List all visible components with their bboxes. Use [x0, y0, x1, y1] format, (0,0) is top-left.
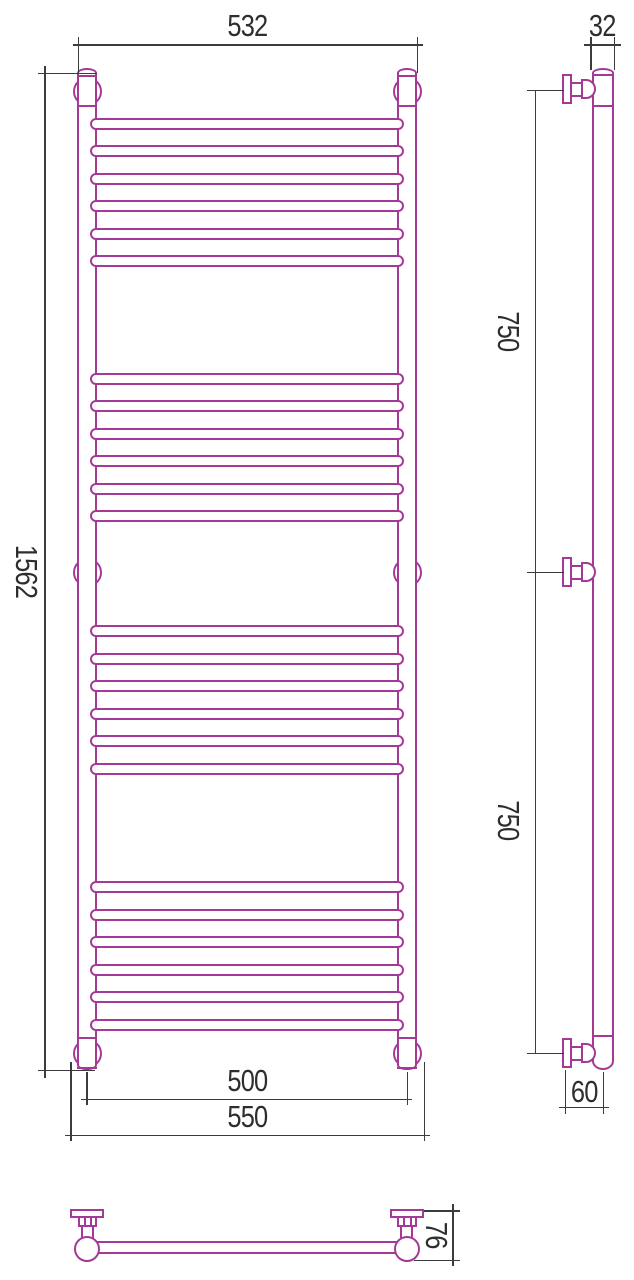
dim-750-lower-label: 750 [493, 772, 525, 868]
towel-rung [90, 964, 404, 976]
dim-750-ext-middle [527, 572, 564, 574]
dim-750-upper-label: 750 [493, 283, 525, 379]
towel-rung [90, 1019, 404, 1031]
towel-rung [90, 400, 404, 412]
towel-rung [90, 228, 404, 240]
plan-right-bracket-nut [397, 1216, 417, 1227]
towel-rung [90, 763, 404, 775]
dim-500-ext-right [407, 1072, 409, 1105]
plan-left-bracket-nut [78, 1216, 97, 1227]
dim-550-ext-left [70, 1062, 72, 1141]
towel-rung [90, 373, 404, 385]
towel-rung [90, 118, 404, 130]
dim-500-label: 500 [187, 1064, 307, 1096]
tube-collar [77, 75, 97, 107]
towel-rung [90, 510, 404, 522]
dim-532-label: 532 [187, 8, 307, 42]
dim-500-ext-left [86, 1072, 88, 1105]
plan-right-nut-line [403, 1216, 405, 1227]
towel-rung [90, 936, 404, 948]
dim-550-label: 550 [187, 1100, 307, 1132]
towel-rung [90, 991, 404, 1003]
towel-rung [90, 200, 404, 212]
dim-550-ext-right [424, 1062, 426, 1141]
towel-rung [90, 680, 404, 692]
towel-rung [90, 735, 404, 747]
dim-750-ext-bottom [527, 1053, 564, 1055]
dim-76-label: 76 [422, 1203, 452, 1267]
tube-collar [77, 1037, 97, 1069]
towel-rung [90, 625, 404, 637]
towel-rung [90, 255, 404, 267]
dim-532-ext-right [417, 37, 419, 73]
dim-1562-ext-bottom [38, 1070, 95, 1072]
tube-collar [397, 1037, 417, 1069]
towel-rung [90, 455, 404, 467]
dim-550-line [65, 1135, 430, 1137]
plan-left-nut-line [90, 1216, 92, 1227]
towel-rail-technical-drawing: 532 32 1562 750 750 500 [0, 0, 634, 1280]
plan-rail-bar [97, 1241, 397, 1254]
dim-532-line [73, 44, 423, 46]
towel-rung [90, 483, 404, 495]
dim-60-label: 60 [559, 1076, 609, 1106]
plan-right-nut-line [410, 1216, 412, 1227]
dim-1562-label: 1562 [11, 506, 43, 636]
plan-left-tube-section [74, 1236, 100, 1262]
dim-532-ext-left [78, 37, 80, 73]
plan-right-tube-section [394, 1236, 420, 1262]
towel-rung [90, 909, 404, 921]
dim-32-label: 32 [578, 8, 626, 42]
towel-rung [90, 708, 404, 720]
plan-left-nut-line [84, 1216, 86, 1227]
dim-750-ext-top [527, 90, 564, 92]
towel-rung [90, 145, 404, 157]
dim-1562-ext-top [38, 73, 97, 75]
side-bottom-collar [592, 1035, 614, 1045]
tube-collar [397, 75, 417, 107]
towel-rung [90, 428, 404, 440]
towel-rung [90, 653, 404, 665]
side-top-collar [592, 74, 614, 107]
towel-rung [90, 881, 404, 893]
towel-rung [90, 173, 404, 185]
